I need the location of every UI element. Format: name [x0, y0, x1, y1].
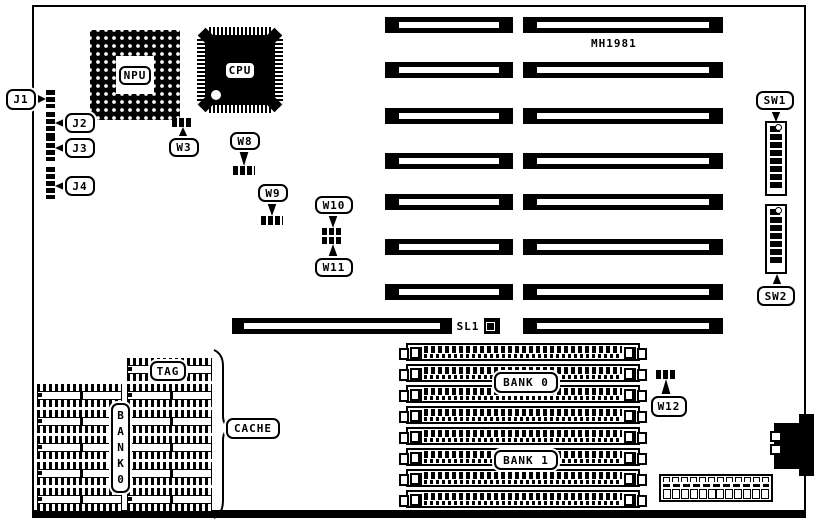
- label-sw2: SW2: [757, 286, 795, 306]
- isa-slot: [523, 17, 723, 33]
- cpu-pin1-dot: [211, 90, 221, 100]
- label-w9: W9: [258, 184, 288, 202]
- jumper-block-j4: [46, 167, 55, 199]
- cpu-pins-right: [275, 39, 283, 101]
- jumper-block-j3: [46, 136, 55, 161]
- sl1-slot: SL1: [232, 318, 500, 334]
- label-bank1: BANK 1: [494, 450, 558, 470]
- keyboard-connector-outer: [799, 414, 814, 476]
- label-sw1: SW1: [756, 91, 794, 110]
- cache-chip: [127, 488, 212, 511]
- isa-slot: [385, 17, 513, 33]
- cache-chip: [37, 410, 122, 433]
- npu-socket: NPU: [90, 30, 180, 120]
- keyboard-connector-notch: [770, 444, 782, 455]
- cache-chip: [37, 462, 122, 485]
- isa-slot: [385, 153, 513, 169]
- label-w12: W12: [651, 396, 687, 417]
- npu-socket-center: NPU: [116, 56, 154, 94]
- simm-socket: [406, 490, 640, 508]
- simm-socket: [406, 427, 640, 445]
- label-j1: J1: [6, 89, 36, 110]
- simm-socket: [406, 343, 640, 361]
- label-sl1: SL1: [452, 318, 484, 334]
- cpu-pins-left: [197, 39, 205, 101]
- cpu-pins-bottom: [209, 105, 271, 113]
- jumper-block-j2: [46, 112, 55, 136]
- isa-slot: [385, 108, 513, 124]
- cpu-pins-top: [209, 27, 271, 35]
- isa-slot: [523, 108, 723, 124]
- simm-socket: [406, 469, 640, 487]
- isa-slot: [523, 194, 723, 210]
- isa-slot: [523, 62, 723, 78]
- label-j4: J4: [65, 176, 95, 196]
- cache-chip: [127, 384, 212, 407]
- board-model-text: MH1981: [591, 37, 637, 50]
- cache-chip: [37, 436, 122, 459]
- simm-socket: [406, 406, 640, 424]
- cache-chip: [37, 384, 122, 407]
- label-bank0: BANK 0: [494, 372, 558, 393]
- jumper-block-j1: [46, 90, 55, 108]
- sl1-pad: [486, 322, 495, 331]
- label-bank0-vertical: BANK0: [111, 403, 130, 493]
- power-connector: [659, 474, 773, 502]
- label-w3: W3: [169, 138, 199, 157]
- label-w11: W11: [315, 258, 353, 277]
- isa-slot: [385, 194, 513, 210]
- isa-slot: [385, 62, 513, 78]
- npu-label: NPU: [119, 66, 152, 85]
- label-w10: W10: [315, 196, 353, 214]
- jumper-block-w9: [261, 216, 283, 225]
- jumper-block-w12: [656, 370, 677, 379]
- isa-slot: [523, 153, 723, 169]
- isa-slot: [523, 318, 723, 334]
- label-cache: CACHE: [226, 418, 280, 439]
- isa-slot: [385, 239, 513, 255]
- motherboard-diagram: MH1981 NPU CPU J1 J2 J3 J4 W3 W8: [0, 0, 816, 527]
- dip-switch-sw1: [765, 121, 787, 196]
- label-w8: W8: [230, 132, 260, 150]
- dip-switch-sw2: [765, 204, 787, 274]
- jumper-block-w3: [172, 118, 193, 127]
- label-j3: J3: [65, 138, 95, 158]
- isa-slot: [385, 284, 513, 300]
- label-tag: TAG: [150, 361, 186, 381]
- jumper-block-w10-w11: [322, 228, 343, 244]
- cache-chip: [37, 488, 122, 511]
- label-j2: J2: [65, 113, 95, 133]
- isa-slot: [523, 284, 723, 300]
- cache-chip: [127, 410, 212, 433]
- isa-slot: [523, 239, 723, 255]
- cache-chip: [127, 462, 212, 485]
- cpu-label: CPU: [224, 61, 257, 80]
- cache-chip: [127, 436, 212, 459]
- keyboard-connector-notch: [770, 431, 782, 442]
- cpu-chip: CPU: [197, 27, 283, 113]
- jumper-block-w8: [233, 166, 255, 175]
